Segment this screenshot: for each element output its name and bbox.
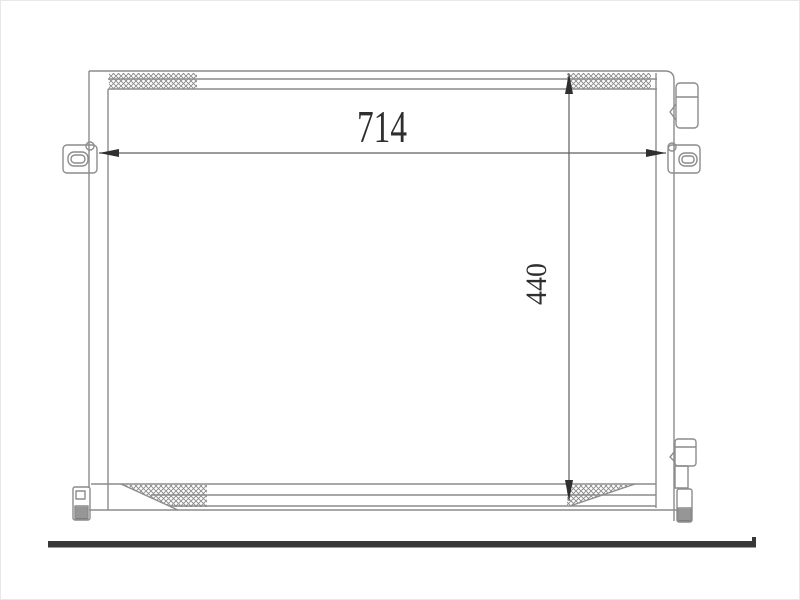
fin-hatch-top-left — [109, 73, 197, 89]
foot-left-slot — [76, 491, 85, 499]
foot-right-pad-stripes — [678, 508, 691, 521]
left-bracket-hole-inner — [71, 155, 85, 163]
foot-left-pad-stripes — [75, 506, 88, 519]
baseline-bar — [48, 541, 756, 548]
height-dim-label: 440 — [520, 263, 553, 305]
condenser-drawing-svg: 714 440 — [1, 1, 799, 599]
technical-drawing: 714 440 — [0, 0, 800, 600]
baseline-bar-end-tick — [752, 537, 756, 542]
dim-arrow-left — [99, 149, 119, 157]
width-dim-label: 714 — [357, 101, 407, 152]
left-bracket-pin-circle — [86, 142, 94, 150]
right-bracket-hole-inner — [682, 156, 694, 163]
fin-hatch-top-right — [567, 73, 651, 89]
lower-right-bracket-body — [675, 439, 696, 466]
mount-bracket-right — [668, 145, 700, 173]
lower-right-bracket-stem — [675, 466, 688, 488]
right-bracket-pin-circle — [668, 143, 676, 151]
pipe-connector-left-notch — [670, 104, 676, 120]
dimension-text-and-arrows: 714 440 — [99, 73, 666, 501]
baseline-bar-group — [48, 537, 756, 548]
pipe-connector-upper — [676, 83, 698, 128]
fin-hatch-bottom-left — [125, 485, 207, 507]
